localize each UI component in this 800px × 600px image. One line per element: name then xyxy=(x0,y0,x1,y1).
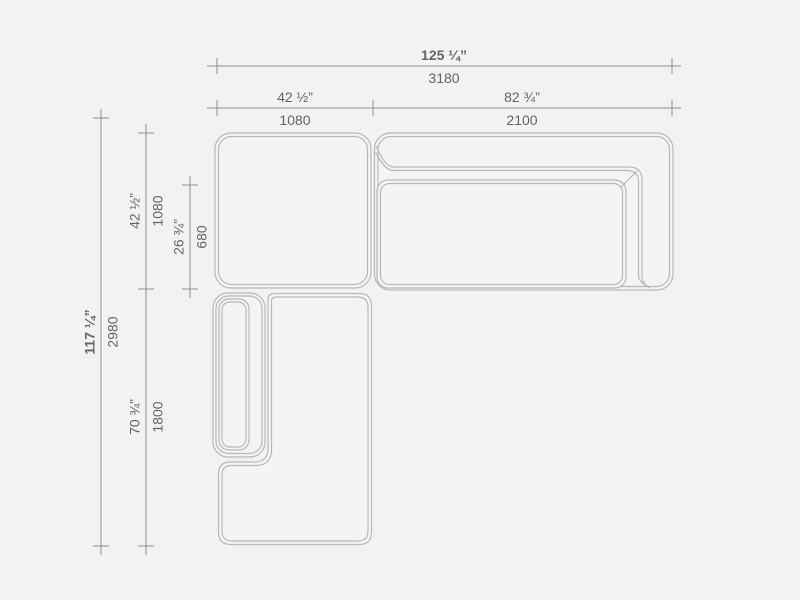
overall-width-inches: 125 ¼” xyxy=(421,48,467,62)
corner-module-outline xyxy=(215,133,371,288)
dim-label-corner-module-depth: 42 ½” 1080 xyxy=(128,193,165,229)
corner-module-depth-inches: 42 ½” xyxy=(128,193,142,229)
dim-label-sofa-module-width: 82 ¾” 2100 xyxy=(504,90,540,127)
dim-label-overall-width: 125 ¼” 3180 xyxy=(421,48,467,85)
sofa-dimension-drawing: 125 ¼” 3180 42 ½” 1080 82 ¾” 2100 117 ¼”… xyxy=(0,0,800,600)
sofa-seat-cushion xyxy=(377,180,626,288)
chaise-length-mm: 1800 xyxy=(151,401,165,432)
sofa-module xyxy=(375,133,674,290)
overall-depth-mm: 2980 xyxy=(106,316,120,347)
drawing-linework xyxy=(0,0,800,600)
sofa-module-width-mm: 2100 xyxy=(506,113,537,127)
chaise-length-inches: 70 ¾” xyxy=(128,399,142,435)
dim-label-chaise-length: 70 ¾” 1800 xyxy=(128,399,165,435)
seat-depth-mm: 680 xyxy=(195,225,209,248)
chaise-armrest-cushion xyxy=(219,299,249,450)
sofa-module-width-inches: 82 ¾” xyxy=(504,90,540,104)
corner-module-width-mm: 1080 xyxy=(279,113,310,127)
corner-module-width-inches: 42 ½” xyxy=(277,90,313,104)
dim-label-overall-depth: 117 ¼” 2980 xyxy=(83,309,120,354)
dim-label-seat-depth: 26 ¾” 680 xyxy=(172,219,209,255)
corner-module-depth-mm: 1080 xyxy=(151,195,165,226)
dim-label-corner-module-width: 42 ½” 1080 xyxy=(277,90,313,127)
seat-depth-inches: 26 ¾” xyxy=(172,219,186,255)
overall-depth-inches: 117 ¼” xyxy=(83,309,97,354)
chaise-module xyxy=(213,293,372,545)
overall-width-mm: 3180 xyxy=(428,71,459,85)
corner-module xyxy=(215,133,371,288)
